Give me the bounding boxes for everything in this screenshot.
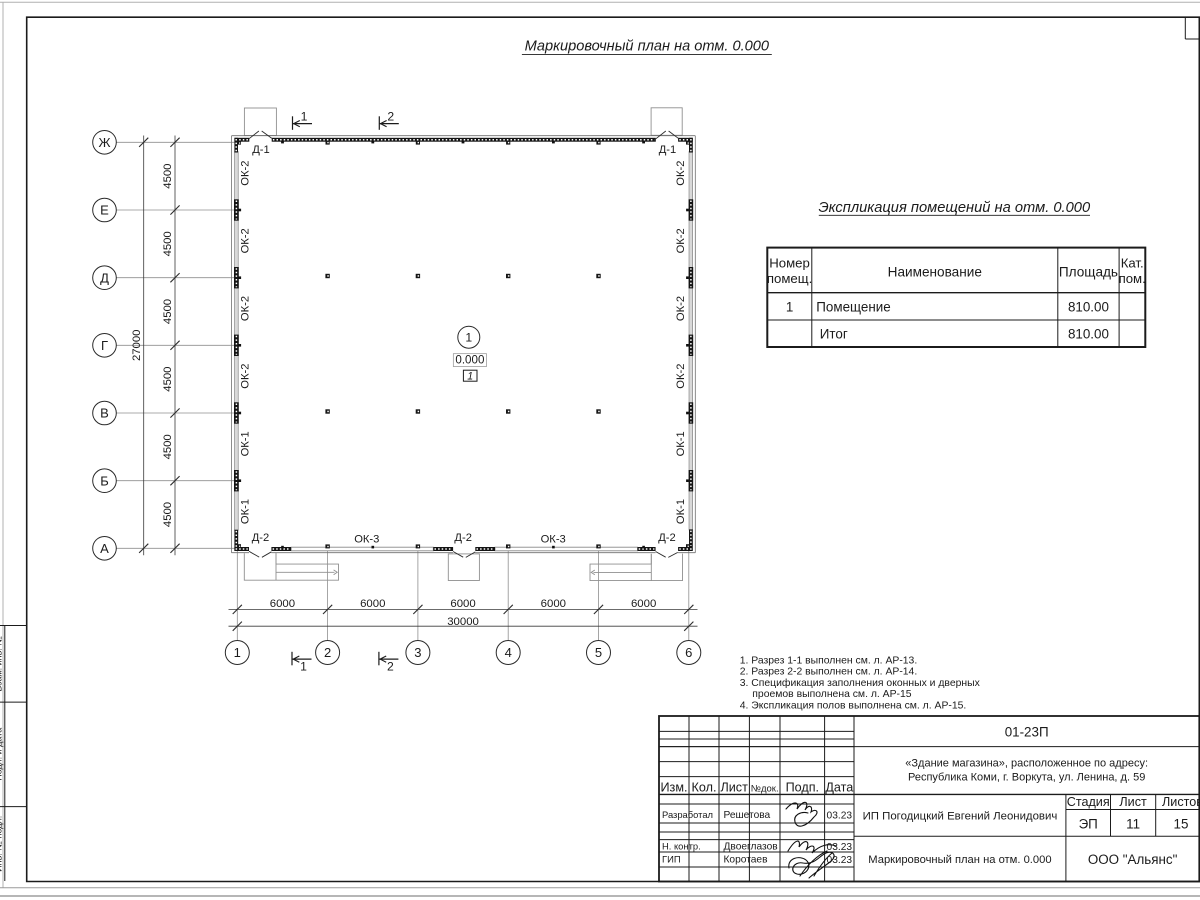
svg-text:Кат.: Кат. xyxy=(1121,256,1144,271)
svg-text:ОК-3: ОК-3 xyxy=(354,533,379,545)
svg-text:Д-2: Д-2 xyxy=(454,532,472,544)
svg-text:4500: 4500 xyxy=(162,231,174,256)
svg-text:1. Разрез 1-1 выполнен см. л.: 1. Разрез 1-1 выполнен см. л. АР-13. xyxy=(740,655,918,666)
svg-text:03.23: 03.23 xyxy=(827,810,853,821)
svg-text:Подп. и дата: Подп. и дата xyxy=(0,728,4,781)
svg-text:ООО "Альянс": ООО "Альянс" xyxy=(1088,852,1178,867)
svg-text:Д-1: Д-1 xyxy=(659,144,677,156)
svg-text:пом.: пом. xyxy=(1119,271,1146,286)
svg-text:ОК-2: ОК-2 xyxy=(239,161,251,186)
svg-text:Д-2: Д-2 xyxy=(658,532,676,544)
svg-text:Листов: Листов xyxy=(1162,795,1200,809)
svg-text:Взам. инв. №: Взам. инв. № xyxy=(0,636,4,692)
svg-text:Разработал: Разработал xyxy=(662,809,713,820)
svg-text:проемов выполнена см. л. АР-15: проемов выполнена см. л. АР-15 xyxy=(752,689,911,700)
svg-text:4500: 4500 xyxy=(162,502,174,527)
svg-text:В: В xyxy=(100,406,109,421)
svg-text:1: 1 xyxy=(465,331,472,345)
svg-text:Изм.: Изм. xyxy=(661,780,688,794)
svg-text:помещ.: помещ. xyxy=(767,271,812,286)
svg-text:Помещение: Помещение xyxy=(816,300,890,315)
svg-text:Ж: Ж xyxy=(98,135,110,150)
svg-text:1: 1 xyxy=(300,659,307,673)
svg-text:Д-1: Д-1 xyxy=(252,144,270,156)
svg-text:ОК-2: ОК-2 xyxy=(675,364,687,389)
svg-text:ОК-1: ОК-1 xyxy=(675,499,687,524)
svg-text:ОК-2: ОК-2 xyxy=(675,296,687,321)
svg-text:6000: 6000 xyxy=(631,598,656,610)
svg-text:«Здание магазина», расположенн: «Здание магазина», расположенное по адре… xyxy=(905,758,1148,770)
svg-text:4500: 4500 xyxy=(162,164,174,189)
svg-text:810.00: 810.00 xyxy=(1068,300,1109,315)
svg-text:6000: 6000 xyxy=(450,598,475,610)
svg-text:Подп.: Подп. xyxy=(786,780,819,794)
svg-text:1: 1 xyxy=(234,645,241,660)
svg-text:Кол.: Кол. xyxy=(692,780,717,794)
svg-text:Коротаев: Коротаев xyxy=(724,855,768,866)
svg-text:4500: 4500 xyxy=(162,299,174,324)
svg-text:ЭП: ЭП xyxy=(1079,816,1098,831)
svg-text:ГИП: ГИП xyxy=(662,854,681,865)
svg-text:ОК-1: ОК-1 xyxy=(239,431,251,456)
svg-text:11: 11 xyxy=(1126,816,1140,831)
svg-text:Номер: Номер xyxy=(769,256,810,271)
svg-text:ОК-2: ОК-2 xyxy=(239,364,251,389)
svg-text:27000: 27000 xyxy=(131,330,143,361)
svg-text:Г: Г xyxy=(101,338,108,353)
svg-text:ОК-1: ОК-1 xyxy=(239,499,251,524)
svg-text:№док.: №док. xyxy=(751,784,779,795)
svg-text:Двоеглазов: Двоеглазов xyxy=(724,841,778,852)
svg-text:Лист: Лист xyxy=(721,780,749,794)
svg-text:Н. контр.: Н. контр. xyxy=(662,840,701,851)
svg-text:Б: Б xyxy=(100,473,109,488)
svg-text:4. Экспликация полов выполнена: 4. Экспликация полов выполнена см. л. АР… xyxy=(740,701,967,712)
svg-text:ОК-2: ОК-2 xyxy=(675,161,687,186)
svg-text:01-23П: 01-23П xyxy=(1005,724,1049,739)
svg-text:03.23: 03.23 xyxy=(827,855,853,866)
svg-text:ОК-2: ОК-2 xyxy=(239,228,251,253)
svg-text:Экспликация помещений на отм.: Экспликация помещений на отм. 0.000 xyxy=(818,200,1090,216)
svg-text:ОК-1: ОК-1 xyxy=(675,431,687,456)
svg-text:Д: Д xyxy=(100,270,109,285)
svg-text:Площадь: Площадь xyxy=(1059,265,1118,280)
svg-text:30000: 30000 xyxy=(447,616,479,628)
svg-text:Д-2: Д-2 xyxy=(252,532,270,544)
svg-text:Наименование: Наименование xyxy=(888,265,982,280)
svg-text:ИП Погодицкий Евгений Леонидов: ИП Погодицкий Евгений Леонидович xyxy=(863,810,1058,822)
svg-text:Е: Е xyxy=(100,203,109,218)
svg-text:Решетова: Решетова xyxy=(724,810,771,821)
svg-text:4500: 4500 xyxy=(162,434,174,459)
svg-text:Стадия: Стадия xyxy=(1067,795,1110,809)
svg-text:03.23: 03.23 xyxy=(827,842,853,853)
svg-text:5: 5 xyxy=(595,645,602,660)
svg-text:Инв. № подл.: Инв. № подл. xyxy=(0,816,4,872)
svg-text:6000: 6000 xyxy=(270,598,295,610)
svg-text:15: 15 xyxy=(1174,816,1189,831)
svg-text:ОК-2: ОК-2 xyxy=(239,296,251,321)
svg-text:ОК-3: ОК-3 xyxy=(541,533,566,545)
svg-text:810.00: 810.00 xyxy=(1068,327,1109,342)
svg-text:ОК-2: ОК-2 xyxy=(675,228,687,253)
svg-text:2. Разрез 2-2 выполнен см. л.: 2. Разрез 2-2 выполнен см. л. АР-14. xyxy=(740,667,918,678)
svg-text:2: 2 xyxy=(387,659,394,673)
svg-text:6: 6 xyxy=(685,645,692,660)
svg-text:Республика Коми, г. Воркута, у: Республика Коми, г. Воркута, ул. Ленина,… xyxy=(908,772,1145,784)
svg-text:Дата: Дата xyxy=(825,780,853,794)
svg-text:1: 1 xyxy=(301,109,308,123)
svg-text:2: 2 xyxy=(387,109,394,123)
svg-text:4500: 4500 xyxy=(162,367,174,392)
svg-text:0.000: 0.000 xyxy=(455,354,484,367)
svg-text:6000: 6000 xyxy=(541,598,566,610)
svg-text:Итог: Итог xyxy=(820,327,848,342)
svg-text:2: 2 xyxy=(324,645,331,660)
svg-text:Маркировочный план на отм. 0.0: Маркировочный план на отм. 0.000 xyxy=(868,854,1051,866)
svg-text:6000: 6000 xyxy=(360,598,385,610)
svg-text:1: 1 xyxy=(467,370,473,382)
svg-text:4: 4 xyxy=(505,645,512,660)
svg-text:А: А xyxy=(100,541,109,556)
svg-text:Маркировочный план на отм. 0.0: Маркировочный план на отм. 0.000 xyxy=(525,39,769,55)
svg-text:3. Спецификация заполнения око: 3. Спецификация заполнения оконных и две… xyxy=(740,677,981,689)
svg-text:3: 3 xyxy=(414,645,421,660)
svg-text:1: 1 xyxy=(786,300,793,315)
svg-text:Лист: Лист xyxy=(1119,795,1147,809)
